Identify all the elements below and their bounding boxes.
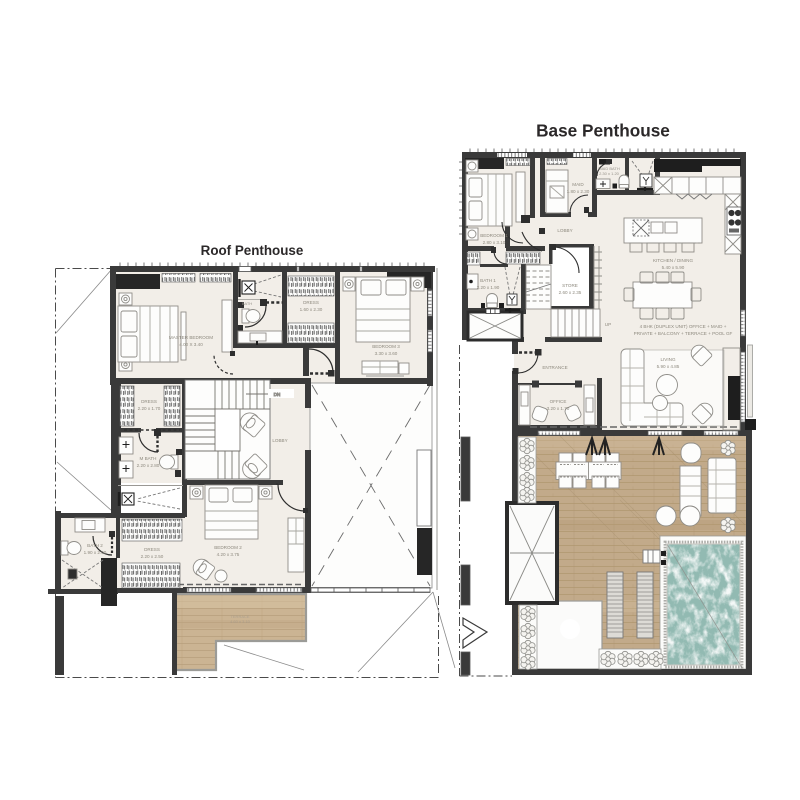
svg-text:BEDROOM 3: BEDROOM 3 [372,344,400,349]
svg-text:2.30 x 1.20: 2.30 x 1.20 [599,171,620,176]
svg-text:DRESS: DRESS [141,399,157,404]
svg-text:KITCHEN / DINING: KITCHEN / DINING [653,258,693,263]
svg-text:3.20 x 1.70: 3.20 x 1.70 [547,406,570,411]
svg-text:BATH 2: BATH 2 [87,543,103,548]
svg-text:4.20 x 3.75: 4.20 x 3.75 [217,552,240,557]
svg-text:MAID: MAID [572,182,584,187]
svg-text:5.90 x 4.85: 5.90 x 4.85 [657,364,680,369]
svg-text:1.60 x 2.30: 1.60 x 2.30 [300,307,323,312]
svg-text:MASTER BEDROOM: MASTER BEDROOM [169,335,213,340]
svg-text:1.80 x 2.30: 1.80 x 2.30 [567,189,590,194]
svg-text:STORE: STORE [562,283,578,288]
svg-text:BEDROOM 2: BEDROOM 2 [214,545,242,550]
svg-text:2.20 x 1.90: 2.20 x 1.90 [477,285,500,290]
svg-text:LOBBY: LOBBY [272,438,287,443]
svg-text:3.30 x 3.60: 3.30 x 3.60 [375,351,398,356]
svg-text:2.80 x 3.10: 2.80 x 3.10 [483,240,506,245]
svg-text:OFFICE: OFFICE [550,399,567,404]
svg-text:2.20 x 2.80: 2.20 x 2.80 [137,463,160,468]
svg-text:2.60 x 2.35: 2.60 x 2.35 [559,290,582,295]
svg-text:BATH 1: BATH 1 [480,278,496,283]
svg-text:LOBBY: LOBBY [557,228,572,233]
svg-text:PRIVATE + BALCONY + TERRACE +: PRIVATE + BALCONY + TERRACE + POOL GF [634,331,733,336]
svg-text:5.40 x 5.90: 5.40 x 5.90 [662,265,685,270]
svg-text:DRESS: DRESS [303,300,319,305]
svg-text:Roof Penthouse: Roof Penthouse [201,243,304,258]
svg-text:4.60 x 3.10: 4.60 x 3.10 [230,619,251,624]
svg-text:4.00 X 3.40: 4.00 X 3.40 [179,342,203,347]
svg-text:4 BHK (DUPLEX UNIT) OFFICE + M: 4 BHK (DUPLEX UNIT) OFFICE + MAID + [640,324,727,329]
svg-text:ENTRANCE: ENTRANCE [542,365,567,370]
svg-text:BATH: BATH [242,301,252,306]
svg-text:1.90 x 2.60: 1.90 x 2.60 [84,550,107,555]
svg-text:UP: UP [605,322,611,327]
svg-text:LIVING: LIVING [660,357,675,362]
svg-text:BEDROOM 1: BEDROOM 1 [480,233,508,238]
svg-text:Base Penthouse: Base Penthouse [536,121,670,141]
svg-text:DRESS: DRESS [144,547,160,552]
svg-text:2.20 x 1.70: 2.20 x 1.70 [138,406,161,411]
svg-text:M BATH: M BATH [139,456,156,461]
svg-text:DN: DN [274,392,281,397]
svg-text:2.20 x 2.50: 2.20 x 2.50 [141,554,164,559]
